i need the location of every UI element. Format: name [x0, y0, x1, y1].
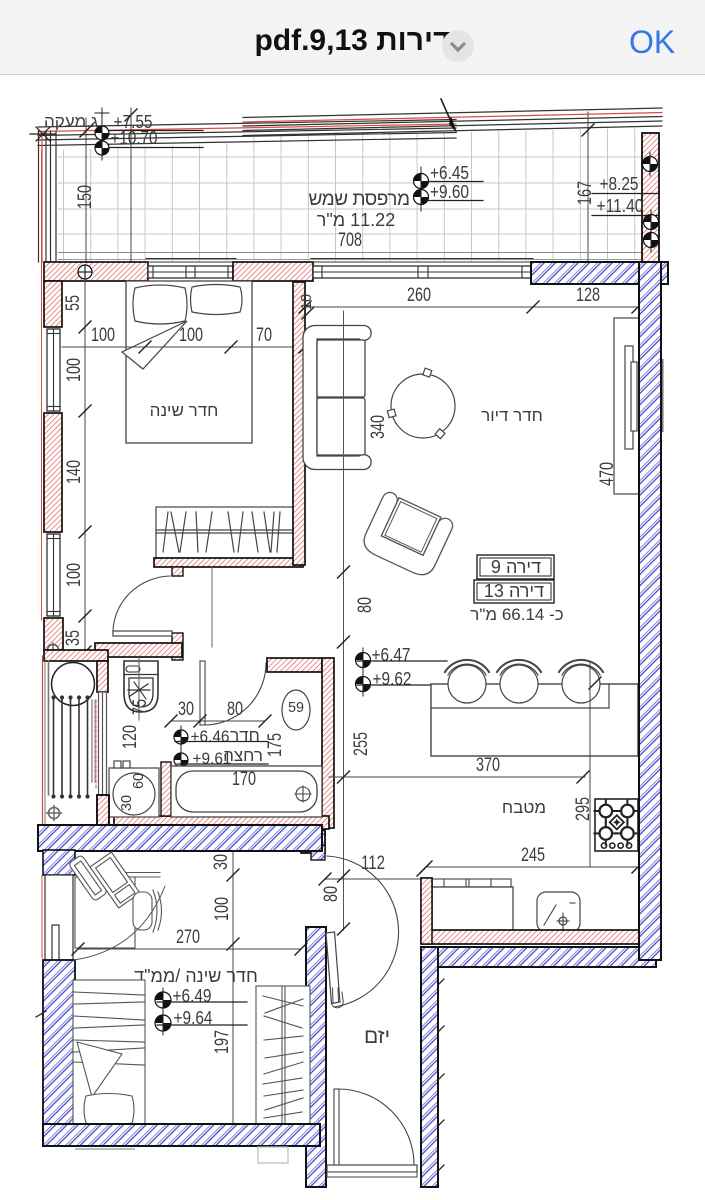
svg-text:245: 245 [521, 845, 545, 866]
svg-text:112: 112 [361, 853, 385, 874]
svg-text:מטבח: מטבח [502, 798, 546, 817]
svg-text:295: 295 [573, 797, 594, 821]
svg-text:59: 59 [288, 699, 304, 716]
svg-text:30: 30 [118, 795, 135, 811]
svg-text:80: 80 [227, 699, 243, 720]
svg-text:+6.47: +6.47 [372, 645, 411, 665]
svg-text:708: 708 [338, 230, 362, 251]
svg-text:30: 30 [211, 854, 232, 870]
svg-text:+6.49: +6.49 [173, 986, 212, 1006]
svg-text:100: 100 [91, 325, 115, 346]
svg-text:+9.62: +9.62 [373, 669, 412, 689]
svg-text:דירה 13: דירה 13 [484, 581, 544, 601]
svg-text:11.22 מ"ר: 11.22 מ"ר [317, 210, 395, 230]
svg-text:255: 255 [351, 732, 372, 756]
svg-text:270: 270 [176, 927, 200, 948]
svg-text:120: 120 [120, 725, 141, 749]
svg-text:100: 100 [64, 563, 85, 587]
svg-text:30: 30 [178, 699, 194, 720]
svg-text:חדר: חדר [230, 726, 260, 745]
svg-text:100: 100 [64, 358, 85, 382]
svg-text:מרפסת שמש: מרפסת שמש [308, 189, 409, 210]
svg-text:100: 100 [179, 325, 203, 346]
svg-text:60: 60 [130, 773, 147, 789]
svg-text:+11.40: +11.40 [597, 196, 644, 216]
svg-text:197: 197 [212, 1030, 233, 1054]
svg-text:140: 140 [64, 460, 85, 484]
svg-text:חדר דיור: חדר דיור [481, 406, 543, 425]
svg-text:+9.61: +9.61 [193, 749, 232, 768]
svg-text:+9.60: +9.60 [430, 182, 469, 202]
svg-text:170: 170 [232, 769, 256, 790]
svg-text:150: 150 [75, 185, 96, 209]
svg-text:+10.70: +10.70 [111, 128, 158, 148]
svg-text:ג.מעקה: ג.מעקה [44, 112, 98, 131]
svg-text:128: 128 [576, 285, 600, 306]
svg-text:חדר שינה /ממ"ד: חדר שינה /ממ"ד [134, 966, 258, 986]
svg-text:100: 100 [212, 897, 233, 921]
svg-text:80: 80 [321, 886, 342, 902]
svg-text:340: 340 [368, 415, 389, 439]
svg-text:470: 470 [597, 462, 618, 486]
svg-text:80: 80 [355, 597, 376, 613]
svg-text:70: 70 [256, 325, 272, 346]
svg-text:יזם: יזם [364, 1025, 390, 1048]
svg-text:260: 260 [407, 285, 431, 306]
svg-text:כ- 66.14 מ"ר: כ- 66.14 מ"ר [470, 605, 563, 624]
svg-text:75: 75 [130, 699, 151, 715]
svg-text:+6.46: +6.46 [191, 727, 230, 746]
svg-text:175: 175 [265, 733, 286, 757]
svg-text:חדר שינה: חדר שינה [150, 401, 219, 420]
svg-text:+6.45: +6.45 [430, 163, 469, 183]
svg-text:דירה 9: דירה 9 [491, 557, 541, 577]
svg-text:370: 370 [476, 755, 500, 776]
svg-text:+8.25: +8.25 [600, 174, 639, 194]
svg-text:35: 35 [63, 630, 84, 646]
svg-text:55: 55 [63, 295, 84, 311]
